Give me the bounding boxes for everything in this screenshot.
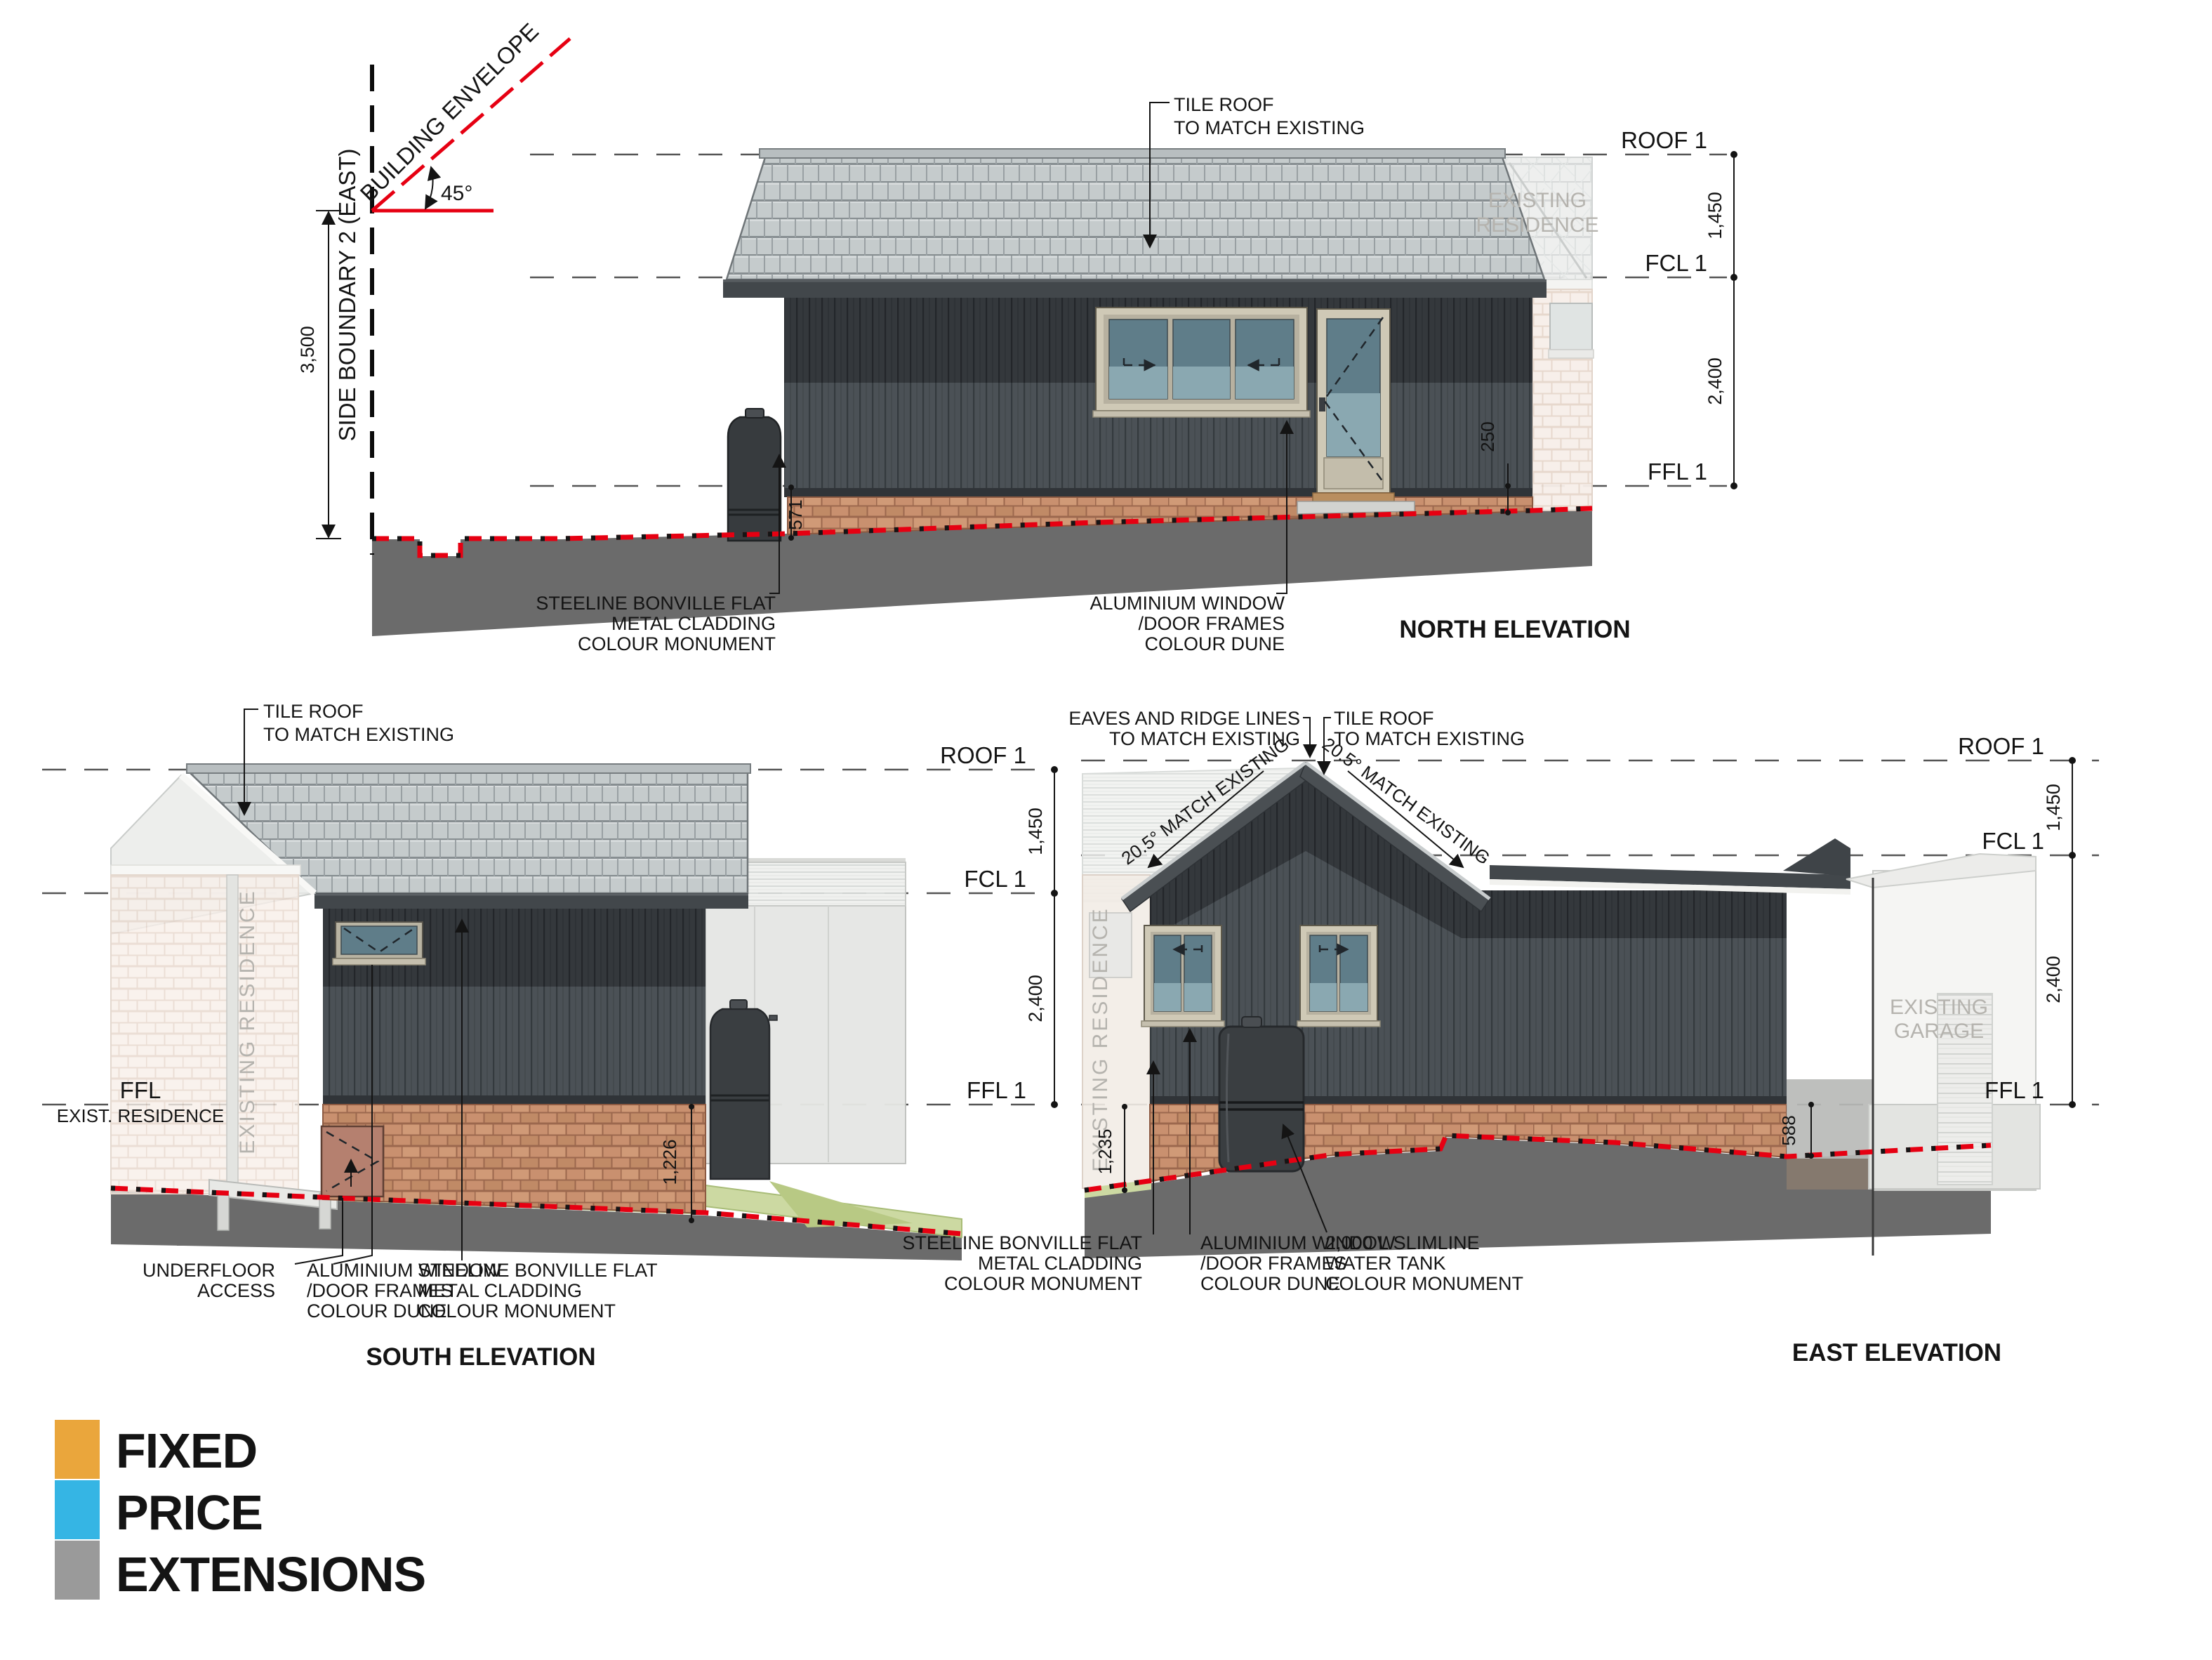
south-dim-2400: 2,400 bbox=[1025, 975, 1046, 1022]
east-cladding-note-1: STEELINE BONVILLE FLAT bbox=[902, 1232, 1142, 1253]
south-underfloor-door bbox=[322, 1126, 383, 1197]
north-fascia bbox=[723, 279, 1547, 298]
east-dim-2400: 2,400 bbox=[2043, 956, 2064, 1003]
side-boundary-label: SIDE BOUNDARY 2 (EAST) bbox=[334, 149, 360, 442]
east-ffl1-label: FFL 1 bbox=[1985, 1077, 2044, 1103]
south-underfloor-note-2: ACCESS bbox=[197, 1280, 275, 1301]
east-dim-1450: 1,450 bbox=[2043, 784, 2064, 831]
south-cladding-note-1: STEELINE BONVILLE FLAT bbox=[418, 1260, 658, 1281]
door-sill bbox=[1313, 493, 1394, 501]
south-ffl1-label: FFL 1 bbox=[967, 1077, 1026, 1103]
north-window-note-2: /DOOR FRAMES bbox=[1138, 613, 1285, 634]
envelope-angle: 45° bbox=[441, 182, 472, 205]
south-ghost-label: EXISTING RESIDENCE bbox=[236, 889, 259, 1154]
north-dim-1450: 1,450 bbox=[1704, 192, 1726, 239]
east-window-left bbox=[1141, 925, 1224, 1027]
east-garage-label-1: EXISTING bbox=[1890, 996, 1988, 1019]
south-awning-window bbox=[333, 922, 425, 965]
building-envelope-label: BUILDING ENVELOPE bbox=[355, 18, 544, 207]
north-dim-250: 250 bbox=[1477, 421, 1498, 452]
door-handle bbox=[1319, 397, 1325, 411]
north-water-tank bbox=[728, 409, 781, 541]
north-sliding-window bbox=[1093, 308, 1310, 417]
south-ffl-exist-label-1: FFL bbox=[120, 1077, 161, 1103]
east-roof1-label: ROOF 1 bbox=[1958, 733, 2044, 759]
logo-square-blue bbox=[55, 1480, 100, 1539]
north-roof1-label: ROOF 1 bbox=[1621, 127, 1707, 153]
boundary-height-dim: 3,500 bbox=[297, 326, 318, 374]
south-ffl-exist-label-2: EXIST. RESIDENCE bbox=[57, 1105, 224, 1126]
north-cladding-note-2: METAL CLADDING bbox=[611, 613, 776, 634]
south-title: SOUTH ELEVATION bbox=[366, 1343, 595, 1371]
north-tile-roof bbox=[723, 149, 1547, 298]
north-dim-571: 571 bbox=[785, 499, 806, 529]
south-roof-note-2: TO MATCH EXISTING bbox=[263, 724, 454, 745]
south-cladding-note-2: METAL CLADDING bbox=[418, 1280, 582, 1301]
logo-text-fixed: FIXED bbox=[116, 1423, 257, 1478]
east-window-right bbox=[1297, 925, 1380, 1027]
north-dim-2400: 2,400 bbox=[1704, 357, 1726, 405]
south-roof-note-1: TILE ROOF bbox=[263, 701, 364, 722]
east-tank-note-2: WATER TANK bbox=[1325, 1253, 1446, 1274]
north-cladding-note-1: STEELINE BONVILLE FLAT bbox=[536, 593, 776, 614]
logo-text-price: PRICE bbox=[116, 1485, 263, 1540]
east-eaves-note-1: EAVES AND RIDGE LINES bbox=[1068, 708, 1300, 729]
north-ghost-label-1: EXISTING bbox=[1488, 189, 1587, 212]
north-roof-note-1: TILE ROOF bbox=[1174, 94, 1274, 115]
north-boundary-envelope: 45° SIDE BOUNDARY 2 (EAST) BUILDING ENVE… bbox=[297, 18, 570, 555]
north-title: NORTH ELEVATION bbox=[1399, 616, 1630, 643]
south-underfloor-note-1: UNDERFLOOR bbox=[143, 1260, 275, 1281]
south-roof1-label: ROOF 1 bbox=[940, 742, 1026, 768]
east-water-tank bbox=[1219, 1017, 1304, 1171]
logo-square-orange bbox=[55, 1420, 100, 1479]
north-window-note-1: ALUMINIUM WINDOW bbox=[1090, 593, 1285, 614]
south-fcl1-label: FCL 1 bbox=[964, 866, 1026, 892]
east-cladding-note-2: METAL CLADDING bbox=[978, 1253, 1142, 1274]
east-window-note-3: COLOUR DUNE bbox=[1200, 1273, 1341, 1294]
logo: FIXED PRICE EXTENSIONS bbox=[55, 1420, 425, 1602]
east-roof-note-1: TILE ROOF bbox=[1334, 708, 1434, 729]
south-elevation: EXISTING RESIDENCE bbox=[42, 701, 1058, 1371]
south-water-tank bbox=[710, 1000, 777, 1179]
north-ffl1-label: FFL 1 bbox=[1648, 459, 1707, 485]
north-window-note-3: COLOUR DUNE bbox=[1144, 633, 1285, 654]
east-garage-label-2: GARAGE bbox=[1894, 1020, 1984, 1043]
south-cladding-note-3: COLOUR MONUMENT bbox=[418, 1300, 616, 1322]
north-elevation: 45° SIDE BOUNDARY 2 (EAST) BUILDING ENVE… bbox=[297, 18, 1737, 654]
east-elevation: EXISTING RESIDENCE bbox=[902, 708, 2099, 1366]
north-roof-note-2: TO MATCH EXISTING bbox=[1174, 117, 1365, 138]
east-tank-note-1: 2,000 L SLIMLINE bbox=[1325, 1232, 1480, 1253]
elevation-sheet: 45° SIDE BOUNDARY 2 (EAST) BUILDING ENVE… bbox=[0, 0, 2212, 1660]
logo-text-extensions: EXTENSIONS bbox=[116, 1547, 425, 1602]
east-fcl1-label: FCL 1 bbox=[1982, 828, 2044, 854]
east-dim-588: 588 bbox=[1778, 1115, 1799, 1145]
east-tank-note-3: COLOUR MONUMENT bbox=[1325, 1273, 1523, 1294]
east-roof-note-2: TO MATCH EXISTING bbox=[1334, 728, 1525, 749]
north-cladding-note-3: COLOUR MONUMENT bbox=[578, 633, 776, 654]
south-dim-1226: 1,226 bbox=[659, 1139, 680, 1185]
east-cladding-note-3: COLOUR MONUMENT bbox=[944, 1273, 1142, 1294]
north-ghost-label-2: RESIDENCE bbox=[1476, 213, 1598, 237]
north-fcl1-label: FCL 1 bbox=[1645, 250, 1707, 276]
door-step bbox=[1297, 501, 1415, 514]
logo-square-gray bbox=[55, 1541, 100, 1600]
south-dim-1450: 1,450 bbox=[1025, 808, 1046, 855]
east-title: EAST ELEVATION bbox=[1792, 1339, 2001, 1366]
east-dim-1235: 1,235 bbox=[1094, 1128, 1115, 1174]
angle-arc bbox=[425, 167, 433, 209]
